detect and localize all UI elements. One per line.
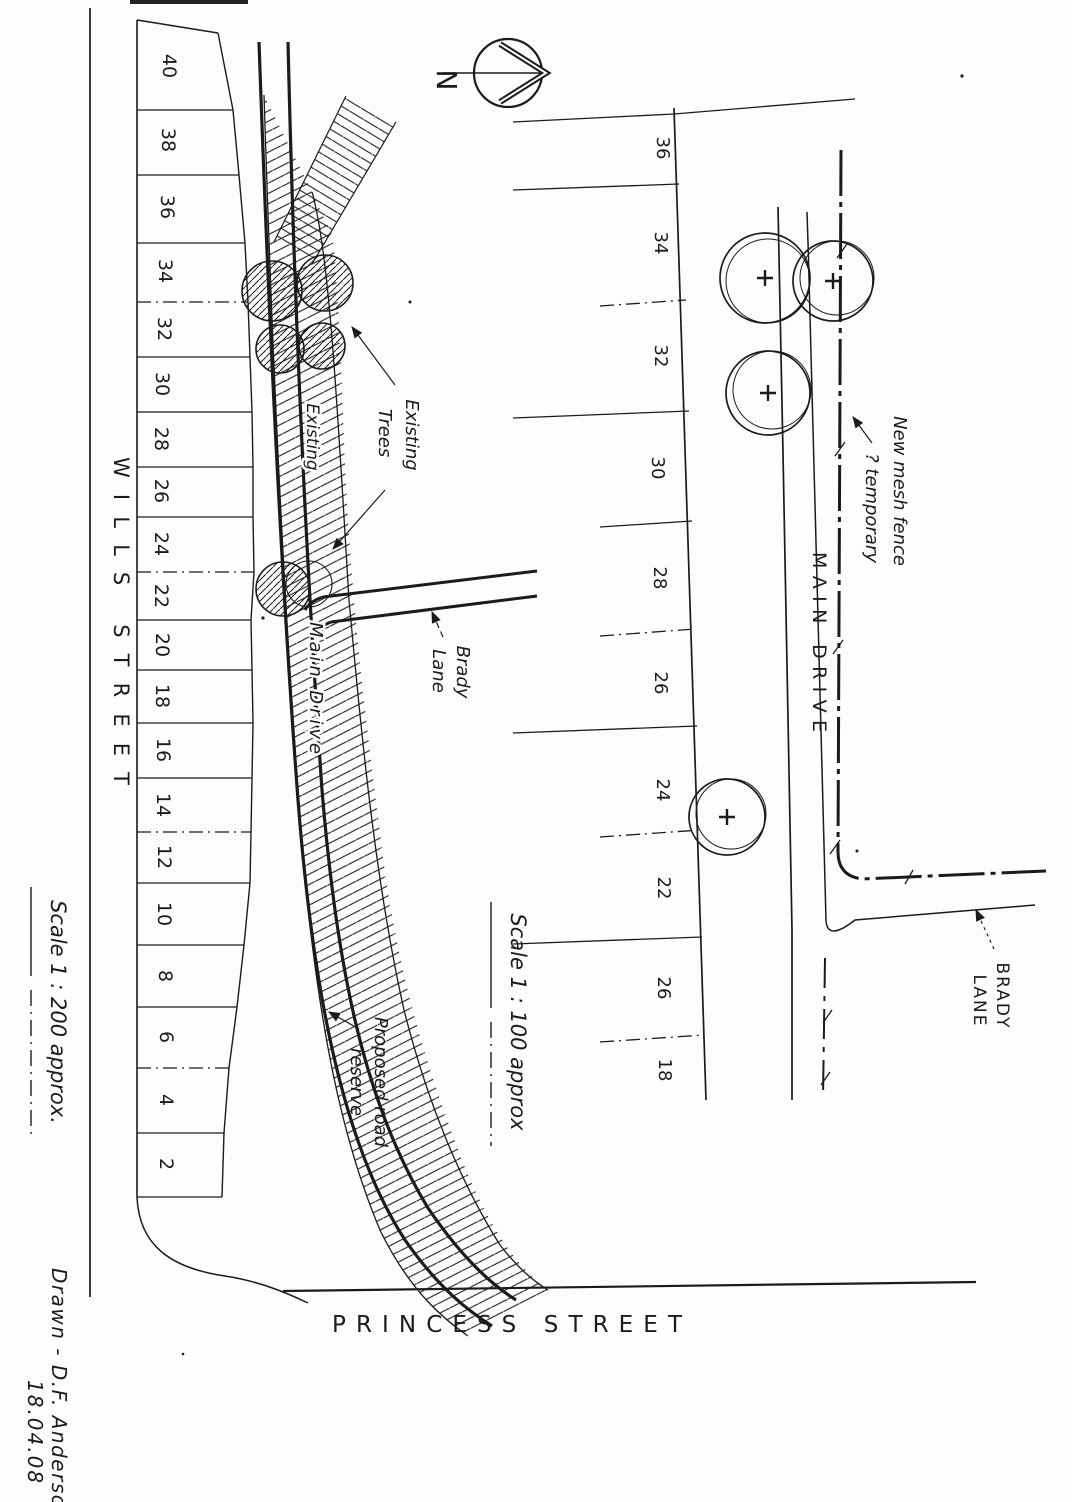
right-lot-numbers: 36 34 32 30 28 26 24 22 26 18 [647, 137, 675, 1082]
lot-number: 22 [150, 584, 172, 608]
wills-street-label: WILLS STREET [109, 457, 133, 787]
main-drive-east-edge-south [823, 958, 825, 1098]
lot-number: 12 [153, 845, 175, 869]
lot-number: 16 [152, 738, 174, 762]
lot-number: 28 [649, 567, 670, 590]
lot-number: 28 [150, 427, 172, 451]
princess-street-label: PRINCESS STREET [332, 1312, 684, 1338]
tree-circle [297, 255, 353, 311]
lot-number: 30 [151, 372, 173, 396]
lot-number: 38 [157, 128, 179, 152]
fence-tick-marks [821, 244, 913, 1085]
lot-number: 24 [652, 779, 673, 802]
site-plan-sheet: WILLS STREET PRINCESS STREET 40 38 36 34… [0, 0, 1072, 1502]
lot-number: 18 [151, 684, 173, 708]
lot-number: 20 [151, 633, 173, 657]
lot-number: 36 [652, 137, 673, 160]
lot-number: 34 [650, 232, 671, 255]
right-plan [513, 99, 1046, 1100]
brady-lane-label-line2: Lane [428, 649, 449, 693]
lot-number: 32 [153, 317, 175, 341]
fence-note-line2: ? temporary [861, 453, 882, 563]
lot-number: 4 [155, 1094, 177, 1106]
proposed-road-label-line2: reserve [346, 1048, 367, 1116]
main-drive-west-edge [778, 207, 792, 1100]
brady-lane-street-label-line2: LANE [969, 975, 989, 1028]
tree-circle [299, 323, 345, 369]
existing-trees-label-line1: Existing [401, 399, 422, 470]
fence-note-line1: New mesh fence [889, 416, 910, 566]
corner-curve [137, 1197, 308, 1303]
scale-100-label: Scale 1 : 100 approx [506, 913, 530, 1131]
lot-number: 26 [150, 479, 172, 503]
site-plan-drawing: WILLS STREET PRINCESS STREET 40 38 36 34… [0, 0, 1072, 1502]
existing-trees-label-line2: Trees [374, 409, 395, 458]
lot-number: 36 [156, 195, 178, 219]
proposed-road-label-line1: Proposed road [370, 1017, 391, 1148]
princess-street-line [283, 1282, 976, 1291]
north-label: N [430, 70, 463, 91]
lot-number: 14 [152, 793, 174, 817]
brady-lane-street-label-line1: BRADY [992, 963, 1012, 1030]
right-top-boundary [513, 99, 855, 122]
tree-circle [242, 261, 302, 321]
title-block: Drawn - D.F. Anderso 18.04.08 [23, 1268, 71, 1502]
lot-number: 26 [653, 977, 674, 1000]
drawn-by-label: Drawn - D.F. Anderso [47, 1268, 71, 1502]
lot-number: 2 [155, 1158, 177, 1170]
north-compass: N [430, 39, 546, 107]
left-plan [90, 8, 976, 1336]
lot-number: 8 [154, 970, 176, 982]
lot-number: 34 [154, 259, 176, 283]
left-lot-numbers: 40 38 36 34 32 30 28 26 24 22 20 18 16 1… [150, 54, 180, 1170]
existing-track-label: Existing [302, 403, 322, 471]
lot-number: 10 [153, 902, 175, 926]
lot-number: 32 [650, 345, 671, 368]
right-plan-trees [689, 233, 874, 855]
lot-number: 6 [155, 1031, 177, 1043]
right-lot-frontage [674, 108, 706, 1100]
right-plan-labels: 36 34 32 30 28 26 24 22 26 18 MAIN DRIVE… [506, 137, 1012, 1132]
right-lot-dividers [513, 184, 704, 1042]
lot40-top-line [137, 20, 218, 33]
tree-circle [256, 562, 310, 616]
lot-number: 18 [654, 1059, 675, 1082]
lot-number: 40 [158, 54, 180, 78]
tree-circle [256, 325, 304, 373]
lot-number: 26 [650, 672, 671, 695]
lot-number: 24 [150, 532, 172, 556]
lot-number: 30 [647, 457, 668, 480]
brady-lane-label-line1: Brady [452, 646, 473, 699]
lot-number: 22 [653, 877, 674, 900]
scale-200-label: Scale 1 : 200 approx. [46, 900, 70, 1124]
date-label: 18.04.08 [23, 1380, 47, 1485]
lot-rear-boundary [218, 33, 254, 1197]
